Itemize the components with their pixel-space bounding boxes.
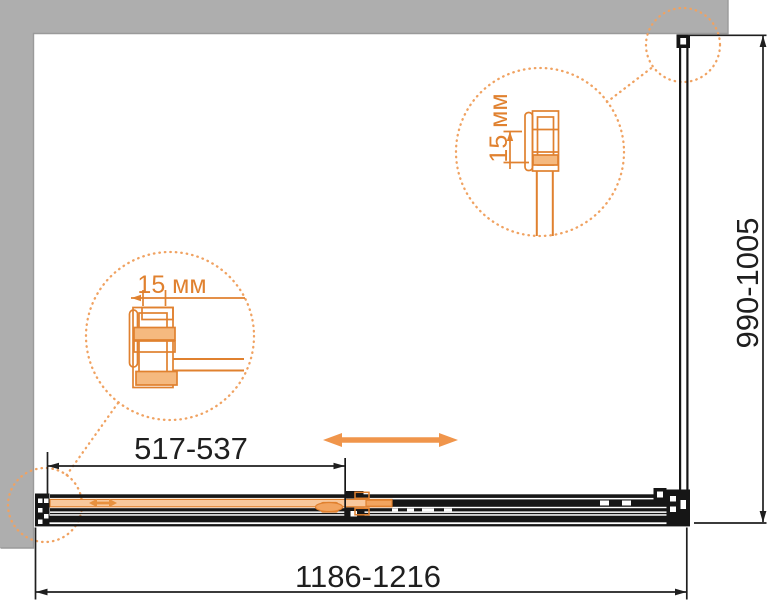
door-track xyxy=(35,458,690,526)
wall-bracket-top-hole xyxy=(680,38,686,45)
door-handle xyxy=(316,503,343,513)
wall-profile-left xyxy=(35,494,50,527)
dim-side-depth-label: 990-1005 xyxy=(730,217,765,348)
dim-door-opening-label: 517-537 xyxy=(134,431,248,466)
detail-left-adjustment-label: 15 мм xyxy=(137,271,206,299)
roller-bracket xyxy=(344,458,392,522)
side-panel-glass-line-right xyxy=(686,47,688,493)
wall-top xyxy=(0,0,728,34)
dim-total-width-label: 1186-1216 xyxy=(295,559,441,594)
track-rail-thin xyxy=(50,513,690,514)
side-panel xyxy=(677,35,691,494)
fixed-panel-notch-1 xyxy=(600,501,609,506)
detail-left-profile xyxy=(130,290,246,388)
shower-enclosure-plan-drawing: 15 мм 15 мм 990-1005 1186-1216 xyxy=(0,0,770,600)
detail-top-adjustment-label: 15 мм xyxy=(485,93,513,162)
detail-leader-left xyxy=(66,403,118,476)
side-panel-glass-line-left xyxy=(679,47,681,493)
wall-left xyxy=(0,0,34,548)
detail-circles xyxy=(8,8,720,542)
fixed-panel-notch-2 xyxy=(622,501,631,506)
track-rail-bottom-thin xyxy=(35,524,690,526)
detail-leader-top xyxy=(607,66,654,102)
slide-direction-arrow-icon xyxy=(323,433,458,447)
